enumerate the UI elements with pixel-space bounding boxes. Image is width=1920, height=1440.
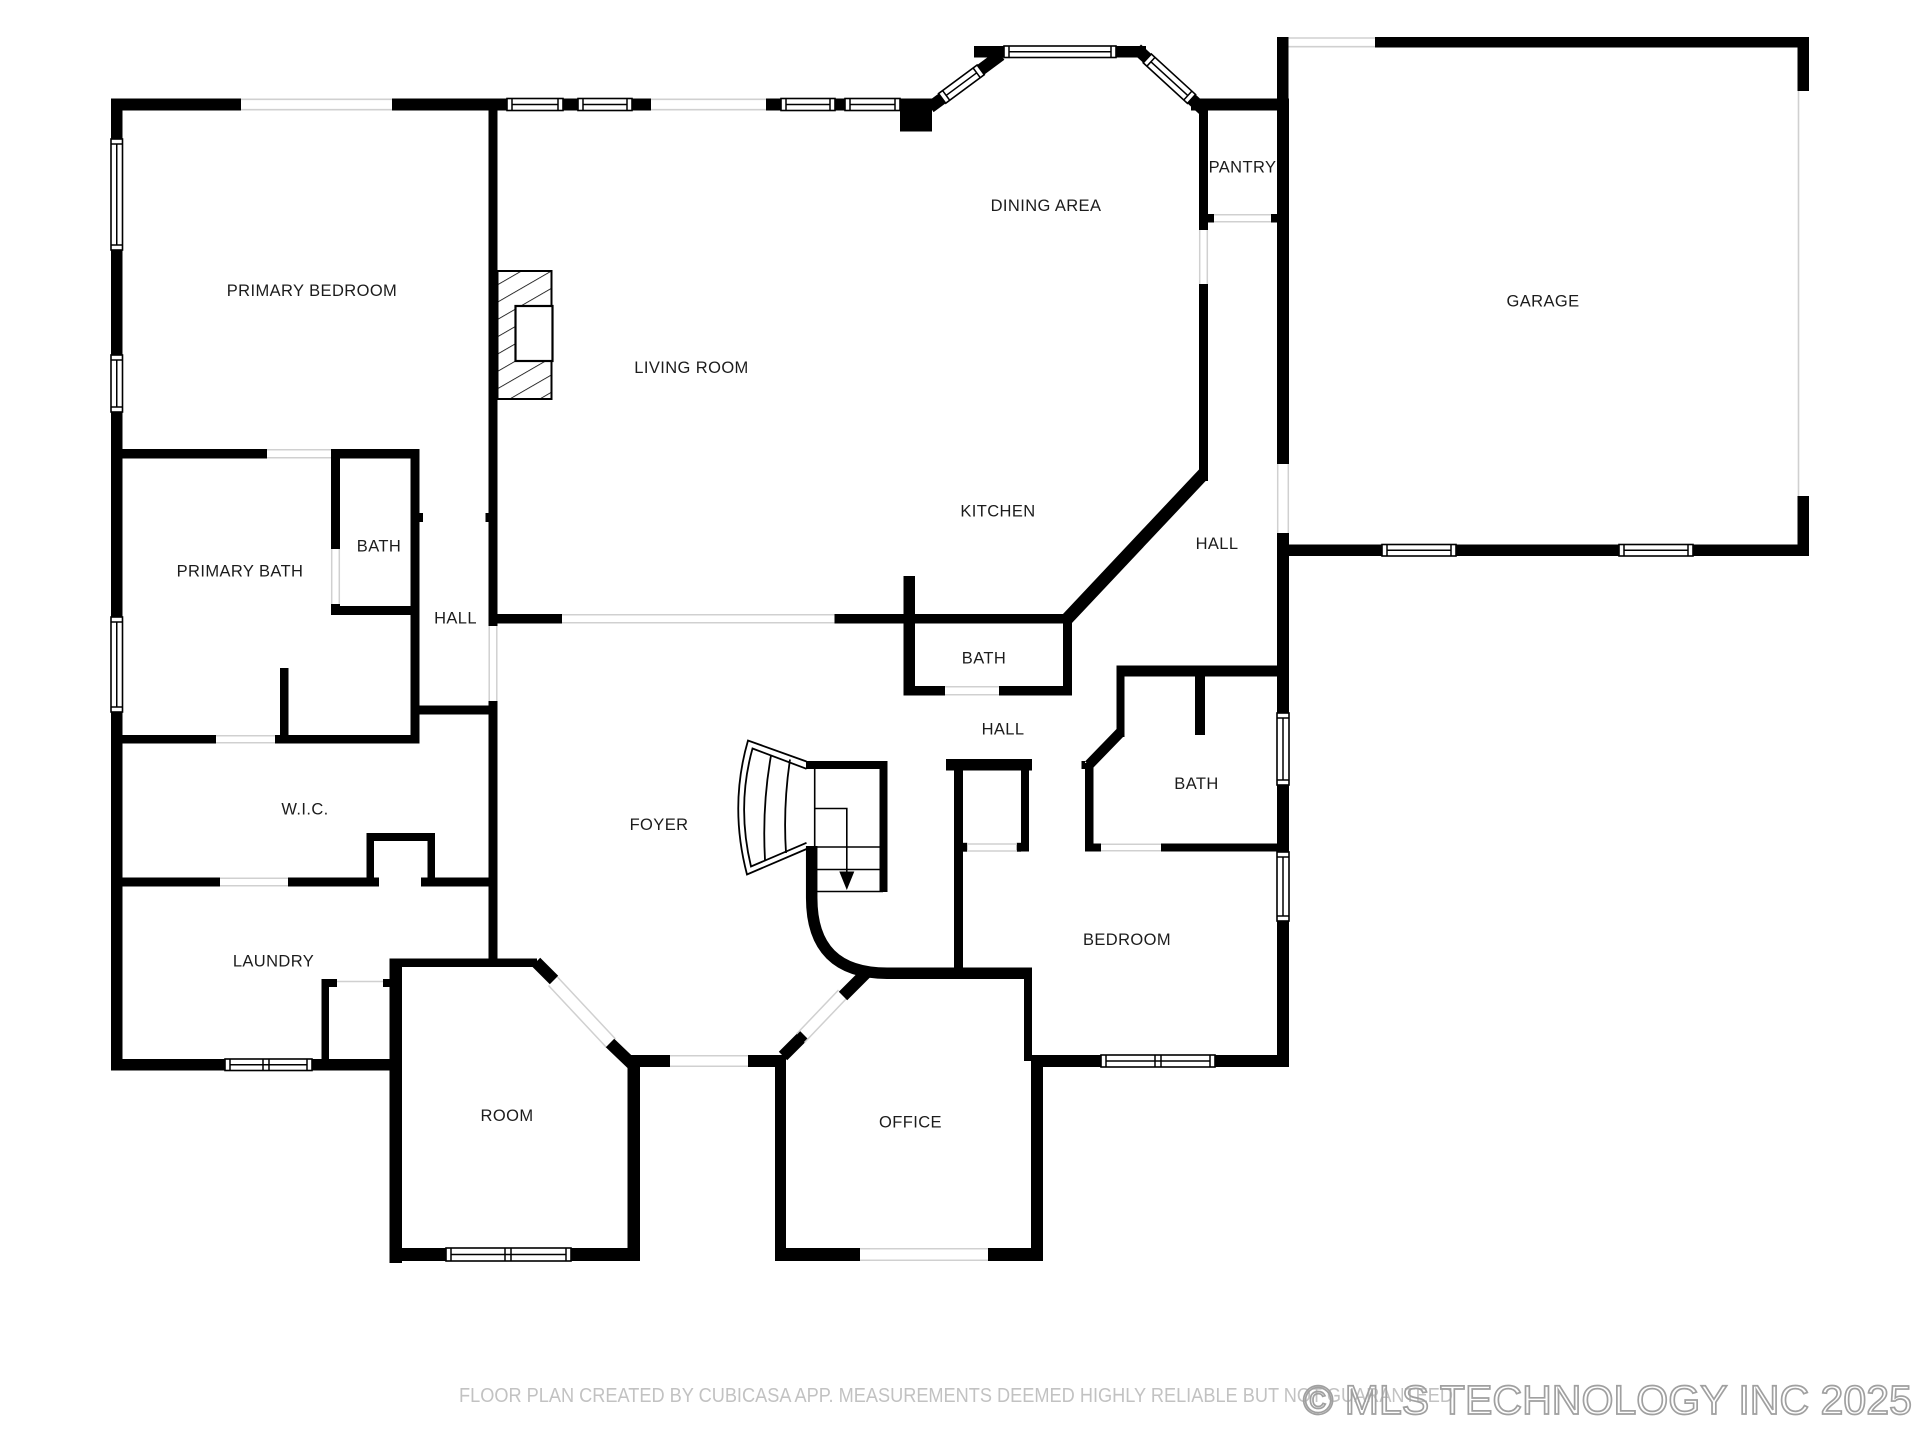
- svg-text:LIVING ROOM: LIVING ROOM: [634, 359, 748, 377]
- svg-text:PRIMARY BATH: PRIMARY BATH: [177, 563, 304, 581]
- svg-text:GARAGE: GARAGE: [1506, 293, 1579, 311]
- svg-text:© MLS TECHNOLOGY INC 2025: © MLS TECHNOLOGY INC 2025: [1303, 1377, 1912, 1423]
- svg-text:HALL: HALL: [434, 610, 477, 628]
- svg-text:FOYER: FOYER: [630, 816, 689, 834]
- svg-text:LAUNDRY: LAUNDRY: [233, 953, 314, 971]
- svg-text:W.I.C.: W.I.C.: [281, 801, 328, 819]
- svg-text:ROOM: ROOM: [481, 1107, 534, 1125]
- svg-text:BEDROOM: BEDROOM: [1083, 931, 1171, 949]
- svg-text:PANTRY: PANTRY: [1209, 159, 1277, 177]
- svg-text:BATH: BATH: [357, 538, 401, 556]
- svg-text:DINING AREA: DINING AREA: [991, 197, 1102, 215]
- svg-text:PRIMARY BEDROOM: PRIMARY BEDROOM: [227, 282, 397, 300]
- svg-text:KITCHEN: KITCHEN: [960, 503, 1035, 521]
- svg-text:BATH: BATH: [962, 650, 1006, 668]
- svg-text:HALL: HALL: [1196, 535, 1239, 553]
- svg-text:HALL: HALL: [982, 721, 1025, 739]
- svg-text:BATH: BATH: [1174, 775, 1218, 793]
- svg-text:OFFICE: OFFICE: [879, 1114, 942, 1132]
